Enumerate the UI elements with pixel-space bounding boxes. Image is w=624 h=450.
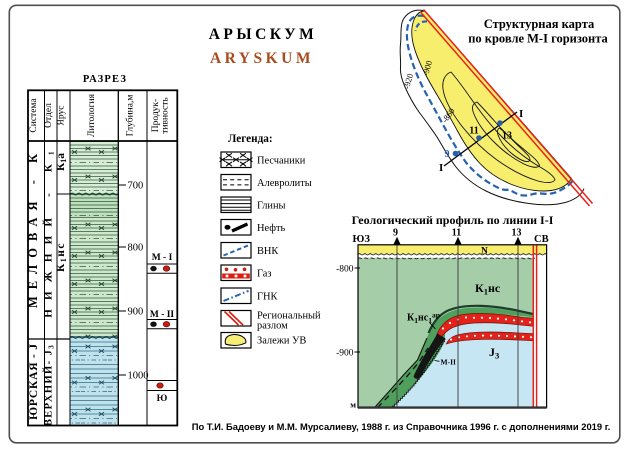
svg-text:11: 11	[452, 228, 461, 239]
svg-text:900: 900	[128, 307, 144, 318]
svg-text:ВНК: ВНК	[257, 246, 278, 257]
svg-text:9: 9	[445, 149, 450, 160]
svg-text:11: 11	[469, 126, 478, 137]
svg-text:МЕЛОВАЯ - К: МЕЛОВАЯ - К	[26, 147, 40, 308]
svg-text:НИЖНИЙ - К1: НИЖНИЙ - К1	[42, 142, 55, 318]
svg-text:1000: 1000	[128, 371, 149, 382]
svg-text:тивность: тивность	[161, 97, 171, 134]
svg-text:Песчаники: Песчаники	[257, 156, 306, 167]
svg-text:М - I: М - I	[152, 253, 173, 263]
svg-text:Глины: Глины	[257, 201, 286, 212]
svg-text:-800: -800	[336, 265, 354, 275]
svg-text:ГНК: ГНК	[257, 292, 278, 303]
svg-text:РАЗРЕЗ: РАЗРЕЗ	[83, 74, 127, 85]
svg-text:Глубина,м: Глубина,м	[125, 95, 136, 137]
svg-text:К1нс: К1нс	[55, 242, 68, 272]
svg-text:Структурная карта: Структурная карта	[484, 17, 595, 31]
svg-text:М-II: М-II	[441, 358, 456, 367]
svg-text:N: N	[481, 246, 488, 256]
svg-text:Продук-: Продук-	[151, 99, 161, 132]
svg-text:ВЕРХНИЙ- J3: ВЕРХНИЙ- J3	[42, 344, 55, 426]
svg-text:Ярус: Ярус	[57, 106, 67, 126]
svg-text:Геологический профиль по линии: Геологический профиль по линии I-I	[352, 213, 554, 227]
svg-text:13: 13	[502, 131, 512, 142]
svg-text:Система: Система	[29, 98, 39, 133]
svg-text:АРЫСКУМ: АРЫСКУМ	[209, 26, 318, 43]
svg-text:К1нс: К1нс	[475, 281, 501, 297]
svg-text:Газ: Газ	[257, 269, 271, 280]
svg-text:Литология: Литология	[87, 93, 97, 137]
svg-text:I: I	[519, 108, 523, 120]
svg-text:Залежи УВ: Залежи УВ	[257, 336, 306, 347]
svg-text:Нефть: Нефть	[257, 223, 286, 234]
svg-text:9: 9	[393, 228, 398, 239]
svg-text:СВ: СВ	[534, 234, 549, 245]
svg-text:ARYSKUM: ARYSKUM	[210, 50, 314, 67]
svg-text:-900: -900	[336, 349, 354, 359]
svg-text:Легенда:: Легенда:	[228, 133, 273, 145]
svg-text:По Т.И. Бадоеву и М.М. Мурсали: По Т.И. Бадоеву и М.М. Мурсалиеву, 1988 …	[192, 421, 611, 432]
svg-text:ЮЗ: ЮЗ	[353, 234, 371, 245]
svg-text:I: I	[439, 162, 443, 174]
svg-text:13: 13	[512, 228, 522, 239]
svg-text:800: 800	[128, 243, 144, 254]
svg-text:Алевролиты: Алевролиты	[257, 178, 312, 189]
svg-text:м: м	[350, 400, 356, 410]
svg-text:М - II: М - II	[150, 310, 175, 320]
svg-text:Ю: Ю	[157, 394, 168, 404]
svg-text:-920: -920	[401, 72, 415, 90]
svg-text:разлом: разлом	[257, 321, 288, 332]
svg-text:ЮРСКАЯ - J: ЮРСКАЯ - J	[28, 343, 40, 420]
svg-text:Отдел: Отдел	[44, 103, 54, 128]
svg-text:700: 700	[128, 181, 144, 192]
svg-text:по кровле М-I горизонта: по кровле М-I горизонта	[468, 32, 608, 46]
